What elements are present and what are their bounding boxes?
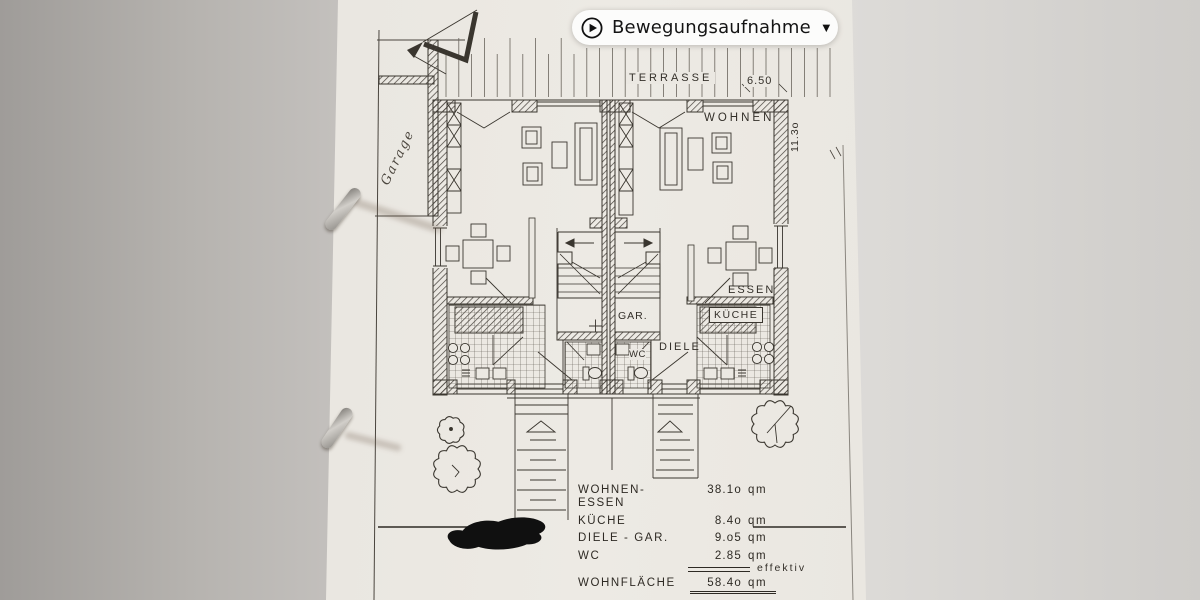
label-terrasse: TERRASSE: [626, 72, 715, 84]
label-garderobe: GAR.: [618, 310, 648, 322]
row-label: KÜCHE: [578, 515, 690, 528]
play-circle-icon: [581, 17, 603, 39]
chevron-down-icon: ▼: [820, 20, 833, 35]
table-row: WC 2.85 qm: [578, 550, 776, 563]
live-photo-badge-label: Bewegungsaufnahme: [612, 17, 811, 38]
row-unit: qm: [742, 532, 776, 545]
row-value: 8.4o: [690, 515, 742, 528]
row-value: 9.o5: [690, 532, 742, 545]
total-value: 58.4o: [690, 577, 742, 590]
live-photo-of-floor-plan: TERRASSE 6.50 WOHNEN 11.3o ESSEN KÜCHE G…: [0, 0, 1200, 600]
table-separator: [688, 567, 750, 572]
background-left: [0, 0, 346, 600]
row-value: 2.85: [690, 550, 742, 563]
background-right: [848, 0, 1200, 600]
row-unit: qm: [742, 550, 776, 563]
label-wc: WC: [629, 349, 646, 360]
label-wohnen: WOHNEN: [704, 112, 774, 124]
table-row: WOHNEN- ESSEN 38.1o qm: [578, 484, 776, 510]
label-terrasse-width: 6.50: [744, 75, 775, 87]
row-label: WOHNEN- ESSEN: [578, 484, 690, 510]
label-kueche: KÜCHE: [709, 307, 763, 323]
table-total-row: WOHNFLÄCHE 58.4oqm: [578, 577, 776, 594]
table-row: KÜCHE 8.4o qm: [578, 515, 776, 528]
label-depth-dimension: 11.3o: [789, 122, 801, 153]
live-photo-badge[interactable]: Bewegungsaufnahme ▼: [572, 10, 838, 45]
area-table: WOHNEN- ESSEN 38.1o qm KÜCHE 8.4o qm DIE…: [578, 484, 776, 599]
row-label: DIELE - GAR.: [578, 532, 690, 545]
row-label: WC: [578, 550, 690, 563]
row-unit: qm: [742, 484, 776, 497]
table-row: DIELE - GAR. 9.o5 qm: [578, 532, 776, 545]
row-unit: qm: [742, 515, 776, 528]
total-label: WOHNFLÄCHE: [578, 577, 690, 590]
label-essen: ESSEN: [728, 284, 775, 296]
total-unit: qm: [742, 577, 776, 590]
label-diele: DIELE: [659, 341, 701, 353]
label-effektiv: effektiv: [757, 562, 806, 574]
row-value: 38.1o: [690, 484, 742, 497]
